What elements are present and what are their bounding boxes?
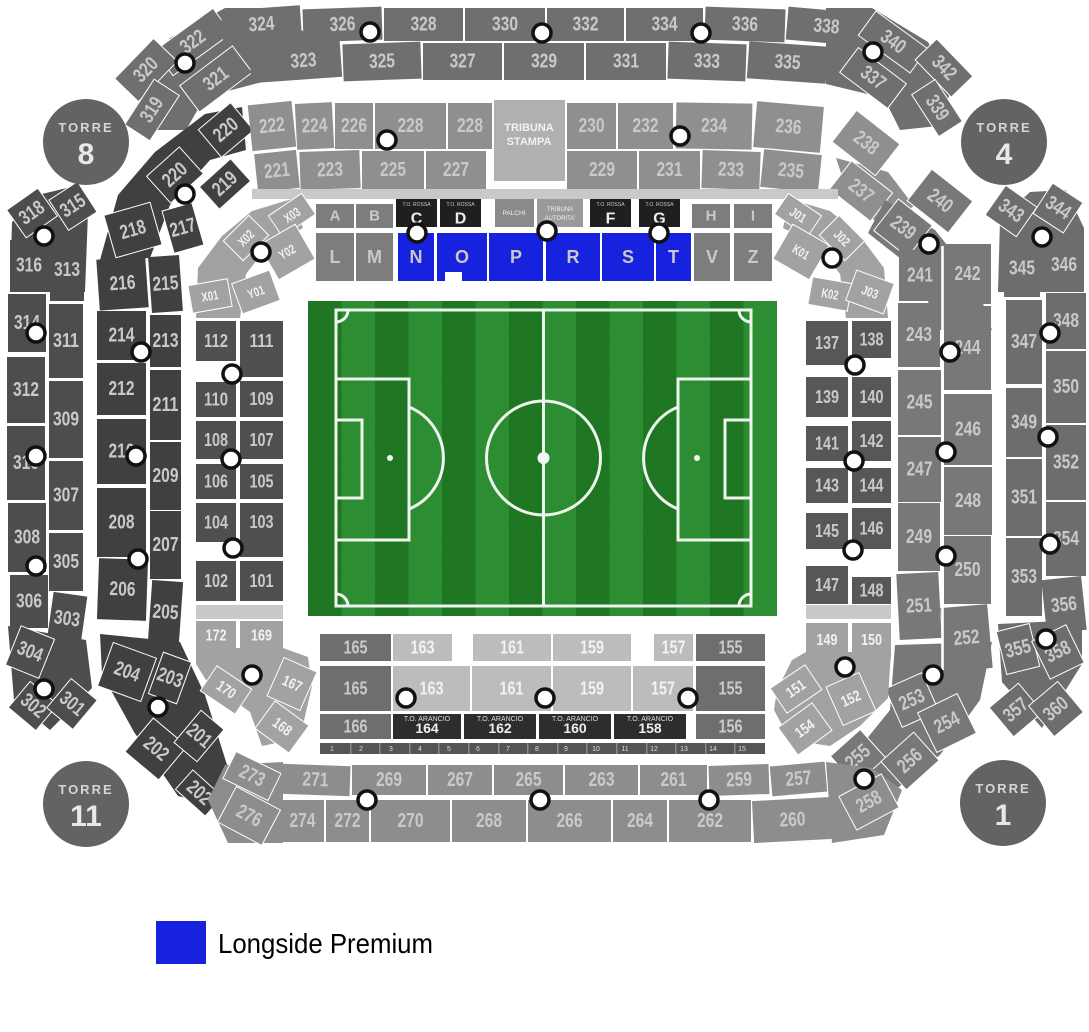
- svg-text:246: 246: [955, 419, 981, 441]
- svg-text:V: V: [706, 247, 718, 267]
- svg-text:139: 139: [815, 387, 839, 407]
- svg-text:15: 15: [738, 746, 746, 753]
- svg-text:230: 230: [579, 115, 605, 137]
- svg-text:106: 106: [204, 472, 228, 492]
- svg-text:313: 313: [54, 259, 80, 281]
- svg-text:206: 206: [109, 578, 136, 601]
- svg-text:11: 11: [621, 746, 628, 753]
- svg-text:248: 248: [955, 490, 981, 512]
- svg-text:232: 232: [633, 115, 659, 137]
- svg-text:160: 160: [563, 720, 587, 736]
- svg-text:350: 350: [1053, 376, 1079, 398]
- svg-text:137: 137: [815, 333, 839, 353]
- svg-text:156: 156: [719, 717, 743, 737]
- svg-text:9: 9: [564, 746, 568, 753]
- svg-text:107: 107: [250, 430, 274, 450]
- svg-text:K02: K02: [820, 285, 839, 303]
- svg-text:172: 172: [206, 628, 227, 645]
- svg-text:166: 166: [344, 717, 368, 737]
- svg-text:324: 324: [248, 13, 276, 37]
- svg-text:216: 216: [109, 272, 136, 296]
- svg-text:6: 6: [476, 746, 480, 753]
- svg-text:205: 205: [152, 601, 179, 625]
- svg-text:334: 334: [652, 14, 679, 36]
- svg-text:103: 103: [250, 512, 274, 532]
- svg-text:311: 311: [53, 330, 79, 352]
- svg-text:1: 1: [330, 746, 334, 753]
- svg-text:8: 8: [535, 746, 539, 753]
- svg-text:155: 155: [719, 679, 743, 699]
- svg-text:TRIBUNA: TRIBUNA: [504, 122, 554, 134]
- svg-text:308: 308: [14, 527, 40, 549]
- svg-text:263: 263: [589, 769, 615, 791]
- svg-text:326: 326: [329, 13, 356, 36]
- svg-text:146: 146: [860, 519, 884, 539]
- svg-text:142: 142: [860, 431, 884, 451]
- svg-text:165: 165: [344, 679, 368, 699]
- svg-text:112: 112: [204, 331, 228, 351]
- svg-text:224: 224: [301, 114, 329, 137]
- svg-text:228: 228: [398, 115, 424, 137]
- svg-text:338: 338: [813, 14, 841, 38]
- svg-text:159: 159: [580, 679, 604, 699]
- svg-text:347: 347: [1011, 331, 1037, 353]
- svg-text:241: 241: [907, 265, 933, 287]
- svg-text:T.O. ROSSA: T.O. ROSSA: [402, 202, 431, 208]
- svg-text:309: 309: [53, 409, 79, 431]
- svg-text:10: 10: [592, 746, 600, 753]
- svg-text:336: 336: [732, 13, 759, 36]
- svg-text:108: 108: [204, 430, 228, 450]
- svg-text:271: 271: [302, 769, 329, 792]
- svg-text:147: 147: [815, 575, 839, 595]
- svg-text:T: T: [668, 247, 679, 267]
- svg-text:7: 7: [506, 746, 510, 753]
- svg-text:5: 5: [447, 746, 451, 753]
- svg-text:251: 251: [905, 594, 932, 617]
- svg-text:169: 169: [251, 628, 272, 645]
- svg-text:12: 12: [650, 746, 658, 753]
- svg-text:228: 228: [457, 115, 483, 137]
- svg-text:161: 161: [500, 679, 524, 699]
- svg-text:159: 159: [580, 638, 604, 658]
- svg-text:212: 212: [109, 378, 135, 400]
- svg-text:335: 335: [774, 51, 801, 75]
- svg-text:316: 316: [16, 255, 42, 277]
- svg-text:13: 13: [680, 746, 688, 753]
- svg-text:X01: X01: [200, 287, 219, 305]
- svg-text:211: 211: [153, 394, 179, 416]
- svg-text:345: 345: [1009, 258, 1035, 280]
- svg-text:109: 109: [250, 389, 274, 409]
- svg-text:2: 2: [359, 746, 363, 753]
- svg-text:229: 229: [589, 159, 615, 181]
- svg-text:145: 145: [815, 521, 839, 541]
- svg-text:S: S: [622, 247, 634, 267]
- svg-text:163: 163: [420, 679, 444, 699]
- svg-text:267: 267: [447, 769, 473, 791]
- svg-text:231: 231: [657, 159, 683, 181]
- svg-text:261: 261: [661, 769, 687, 791]
- svg-text:227: 227: [443, 159, 469, 181]
- svg-text:215: 215: [152, 272, 179, 296]
- svg-text:208: 208: [109, 512, 135, 534]
- svg-text:Longside Premium: Longside Premium: [218, 928, 433, 959]
- svg-text:259: 259: [726, 769, 753, 792]
- svg-text:257: 257: [785, 767, 813, 791]
- svg-text:14: 14: [709, 746, 717, 753]
- svg-text:144: 144: [860, 476, 884, 496]
- svg-text:165: 165: [344, 638, 368, 658]
- svg-text:331: 331: [613, 51, 639, 73]
- svg-text:351: 351: [1011, 487, 1037, 509]
- svg-text:155: 155: [719, 638, 743, 658]
- svg-text:222: 222: [258, 114, 286, 139]
- svg-text:R: R: [567, 247, 580, 267]
- svg-text:268: 268: [476, 810, 502, 832]
- svg-text:I: I: [751, 208, 755, 225]
- svg-text:265: 265: [516, 769, 542, 791]
- svg-text:307: 307: [53, 485, 79, 507]
- svg-text:327: 327: [450, 51, 476, 73]
- svg-text:249: 249: [906, 526, 932, 548]
- svg-text:352: 352: [1053, 452, 1079, 474]
- svg-text:306: 306: [16, 591, 42, 613]
- svg-text:353: 353: [1011, 566, 1037, 588]
- svg-text:T.O. ROSSA: T.O. ROSSA: [446, 202, 475, 208]
- svg-text:PALCHI: PALCHI: [503, 210, 526, 217]
- svg-text:TORRE: TORRE: [976, 120, 1031, 135]
- svg-text:149: 149: [817, 632, 838, 649]
- svg-text:270: 270: [398, 810, 424, 832]
- svg-text:A: A: [330, 208, 341, 225]
- svg-text:F: F: [606, 211, 616, 228]
- svg-text:207: 207: [153, 534, 179, 556]
- svg-text:143: 143: [815, 476, 839, 496]
- svg-text:140: 140: [860, 387, 884, 407]
- svg-text:262: 262: [697, 810, 723, 832]
- svg-text:D: D: [455, 211, 467, 228]
- svg-text:TORRE: TORRE: [975, 781, 1030, 796]
- svg-text:105: 105: [250, 472, 274, 492]
- svg-text:158: 158: [638, 720, 662, 736]
- svg-text:N: N: [410, 247, 423, 267]
- svg-text:138: 138: [860, 330, 884, 350]
- svg-text:245: 245: [907, 392, 933, 414]
- svg-text:157: 157: [662, 638, 686, 658]
- svg-text:TORRE: TORRE: [58, 782, 113, 797]
- svg-text:148: 148: [860, 581, 884, 601]
- svg-text:B: B: [369, 208, 380, 225]
- svg-text:260: 260: [779, 808, 806, 831]
- svg-text:163: 163: [411, 638, 435, 658]
- svg-text:328: 328: [411, 14, 437, 36]
- svg-text:349: 349: [1011, 412, 1037, 434]
- svg-text:223: 223: [317, 159, 344, 182]
- svg-text:213: 213: [153, 330, 179, 352]
- svg-text:312: 312: [13, 379, 39, 401]
- svg-text:333: 333: [694, 50, 721, 73]
- svg-text:TRIBUNA: TRIBUNA: [547, 207, 573, 213]
- svg-text:L: L: [330, 247, 341, 267]
- svg-text:305: 305: [53, 551, 79, 573]
- svg-text:P: P: [510, 247, 522, 267]
- svg-text:150: 150: [861, 632, 882, 649]
- svg-text:252: 252: [953, 626, 981, 650]
- svg-text:4: 4: [996, 138, 1013, 171]
- svg-text:110: 110: [204, 390, 228, 410]
- svg-text:214: 214: [109, 325, 136, 347]
- svg-text:162: 162: [488, 720, 512, 736]
- svg-text:1: 1: [995, 799, 1012, 832]
- svg-text:M: M: [367, 247, 382, 267]
- svg-text:164: 164: [415, 720, 439, 736]
- svg-text:3: 3: [389, 746, 393, 753]
- svg-text:221: 221: [263, 159, 291, 184]
- svg-text:274: 274: [290, 810, 317, 832]
- svg-text:236: 236: [775, 115, 803, 139]
- svg-text:325: 325: [369, 50, 396, 73]
- svg-text:269: 269: [376, 769, 402, 791]
- svg-text:243: 243: [906, 324, 932, 346]
- svg-text:266: 266: [557, 810, 583, 832]
- svg-text:332: 332: [573, 14, 599, 36]
- svg-text:264: 264: [627, 810, 654, 832]
- svg-text:T.O. ROSSA: T.O. ROSSA: [596, 202, 625, 208]
- svg-text:234: 234: [701, 115, 728, 137]
- svg-text:O: O: [455, 247, 469, 267]
- svg-text:101: 101: [250, 571, 274, 591]
- svg-text:H: H: [706, 208, 717, 225]
- svg-text:356: 356: [1050, 593, 1078, 618]
- svg-text:225: 225: [380, 159, 406, 181]
- svg-text:272: 272: [335, 810, 361, 832]
- svg-text:233: 233: [718, 159, 745, 182]
- svg-text:242: 242: [955, 263, 981, 285]
- svg-text:161: 161: [500, 638, 524, 658]
- svg-text:T.O. ROSSA: T.O. ROSSA: [645, 202, 674, 208]
- svg-text:226: 226: [341, 115, 367, 137]
- svg-text:Z: Z: [748, 247, 759, 267]
- svg-text:346: 346: [1051, 254, 1077, 276]
- svg-text:102: 102: [204, 571, 228, 591]
- svg-text:157: 157: [651, 679, 675, 699]
- svg-text:STAMPA: STAMPA: [507, 136, 552, 148]
- svg-text:11: 11: [70, 800, 102, 833]
- svg-text:329: 329: [531, 51, 557, 73]
- svg-text:247: 247: [907, 459, 933, 481]
- svg-text:330: 330: [492, 14, 518, 36]
- svg-text:4: 4: [418, 746, 422, 753]
- svg-text:104: 104: [204, 513, 228, 533]
- svg-text:250: 250: [955, 559, 981, 581]
- svg-text:209: 209: [153, 465, 179, 487]
- svg-text:111: 111: [250, 331, 274, 351]
- svg-text:141: 141: [815, 434, 839, 454]
- svg-text:235: 235: [777, 159, 805, 184]
- svg-text:303: 303: [53, 606, 82, 631]
- svg-text:8: 8: [78, 138, 95, 171]
- svg-text:TORRE: TORRE: [58, 120, 113, 135]
- svg-text:323: 323: [290, 49, 317, 73]
